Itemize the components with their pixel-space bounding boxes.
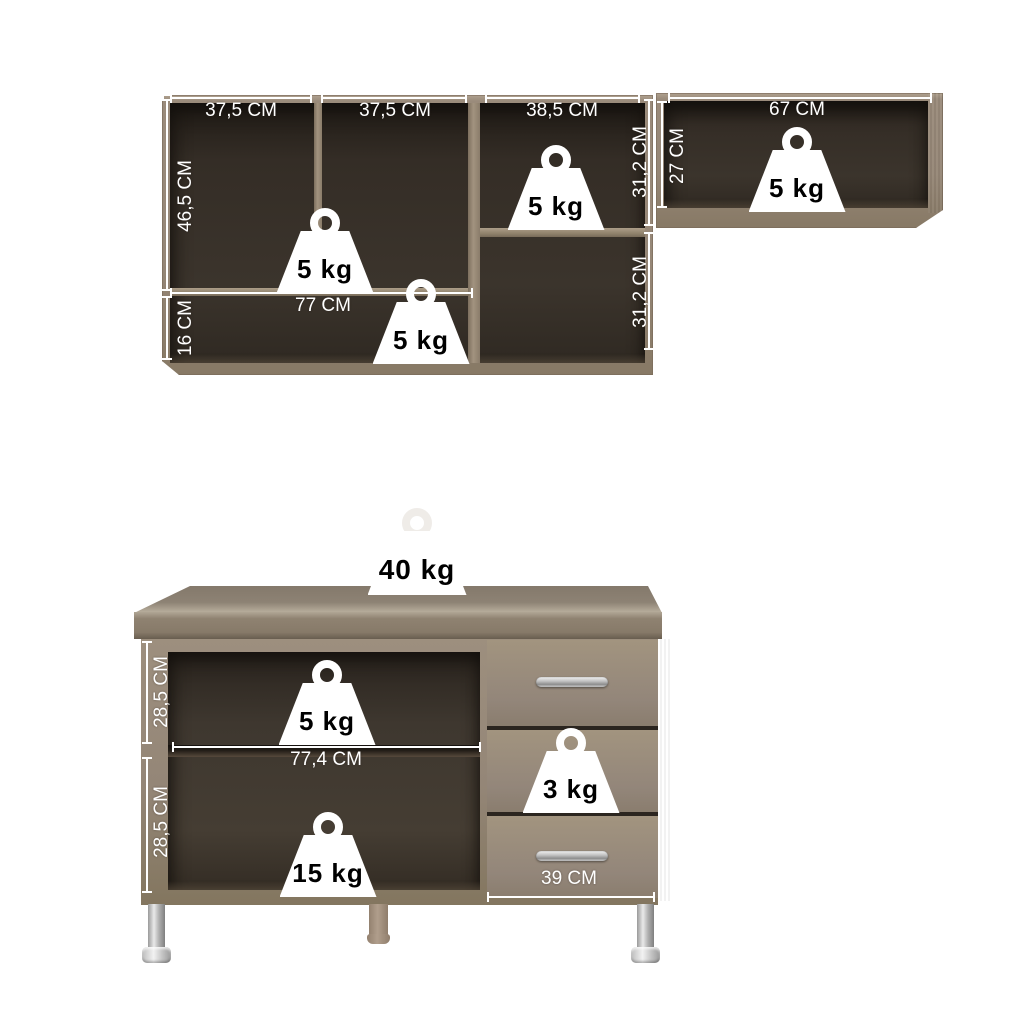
dimension-line — [661, 101, 663, 208]
weight-body-icon: 5 kg — [508, 168, 605, 230]
back-leg — [369, 904, 388, 938]
weight-label: 15 kg — [292, 858, 364, 889]
dim-label-side-height: 46,5 CM — [176, 151, 196, 241]
weight-body-icon: 40 kg — [368, 531, 467, 595]
dim-label-base-inner-width: 77,4 CM — [281, 750, 371, 770]
dim-label-drawer-width: 39 CM — [524, 869, 614, 889]
dimension-line — [170, 97, 312, 99]
weight-icon: 5 kg — [275, 208, 375, 293]
weight-icon: 15 kg — [278, 812, 378, 897]
weight-icon: 5 kg — [506, 145, 606, 230]
dim-label-base-lower-height: 28,5 CM — [152, 777, 172, 867]
chrome-leg — [637, 904, 654, 950]
weight-label: 5 kg — [299, 706, 355, 737]
corner-mark — [162, 88, 164, 101]
weight-icon: 5 kg — [747, 127, 847, 212]
weight-label: 5 kg — [769, 173, 825, 204]
dim-label-col3-width: 38,5 CM — [517, 101, 607, 121]
dim-label-shelf-width: 77 CM — [278, 296, 368, 316]
dimension-line — [321, 97, 467, 99]
dim-label-col2-width: 37,5 CM — [350, 101, 440, 121]
dimension-line — [166, 99, 168, 291]
countertop-edge — [134, 612, 662, 639]
dim-label-right-cabinet-width: 67 CM — [752, 100, 842, 120]
dim-label-col3-row2-height: 31,2 CM — [631, 247, 651, 337]
chrome-leg — [148, 904, 165, 950]
dim-label-col3-row1-height: 31,2 CM — [631, 117, 651, 207]
weight-label: 40 kg — [379, 554, 456, 586]
back-leg-cap — [367, 934, 390, 944]
weight-label: 5 kg — [528, 191, 584, 222]
dimension-line — [146, 641, 148, 744]
weight-body-icon: 5 kg — [279, 683, 376, 745]
dim-label-bottom-height: 16 CM — [176, 283, 196, 373]
weight-body-icon: 5 kg — [373, 302, 470, 364]
weight-label: 5 kg — [393, 325, 449, 356]
dimension-line — [166, 296, 168, 360]
furniture-dimension-diagram: 37,5 CM 37,5 CM 38,5 CM 67 CM 46,5 CM 16… — [0, 0, 1024, 1024]
drawer-handle — [536, 677, 608, 687]
drawer-handle — [536, 851, 608, 861]
dimension-line — [487, 896, 655, 898]
dimension-line — [172, 746, 481, 748]
dim-label-right-cabinet-height: 27 CM — [668, 111, 688, 201]
leg-foot — [631, 947, 660, 963]
cabinet-side-panel — [928, 93, 943, 213]
weight-icon: 5 kg — [371, 279, 471, 364]
weight-icon: 40 kg — [367, 508, 467, 595]
weight-icon: 5 kg — [277, 660, 377, 745]
base-cabinet-side-panel — [658, 639, 672, 901]
dim-label-col1-width: 37,5 CM — [196, 101, 286, 121]
weight-body-icon: 15 kg — [280, 835, 377, 897]
dimension-line — [485, 97, 640, 99]
weight-label: 3 kg — [543, 774, 599, 805]
dim-label-base-upper-height: 28,5 CM — [152, 647, 172, 737]
weight-body-icon: 5 kg — [749, 150, 846, 212]
weight-body-icon: 5 kg — [277, 231, 374, 293]
weight-icon: 3 kg — [521, 728, 621, 813]
weight-label: 5 kg — [297, 254, 353, 285]
leg-foot — [142, 947, 171, 963]
dimension-line — [146, 757, 148, 893]
weight-body-icon: 3 kg — [523, 751, 620, 813]
